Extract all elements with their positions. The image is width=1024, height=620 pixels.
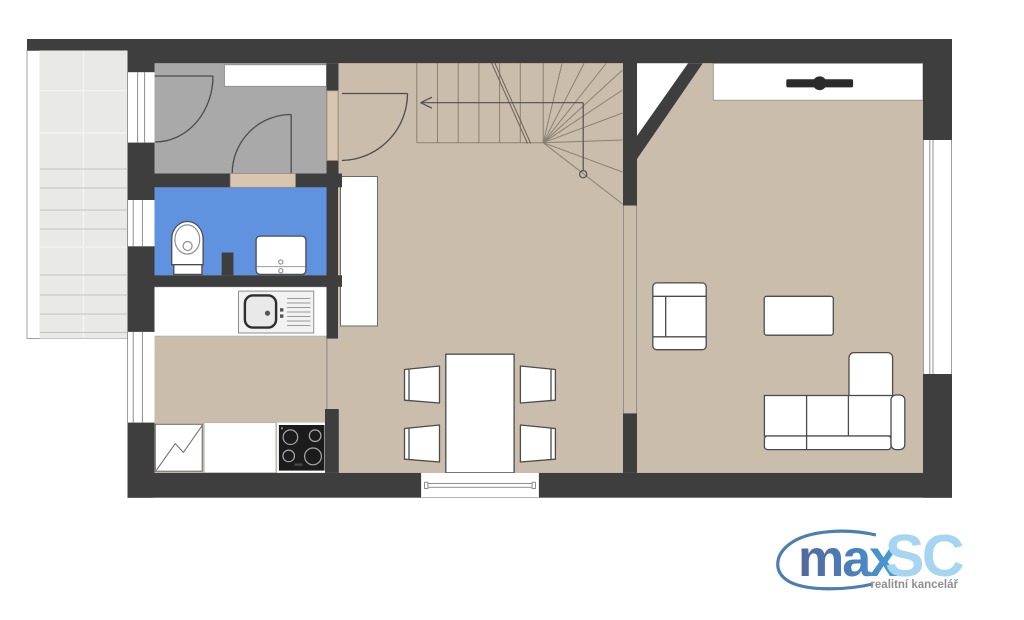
svg-text:realitní kancelář: realitní kancelář	[870, 579, 958, 591]
